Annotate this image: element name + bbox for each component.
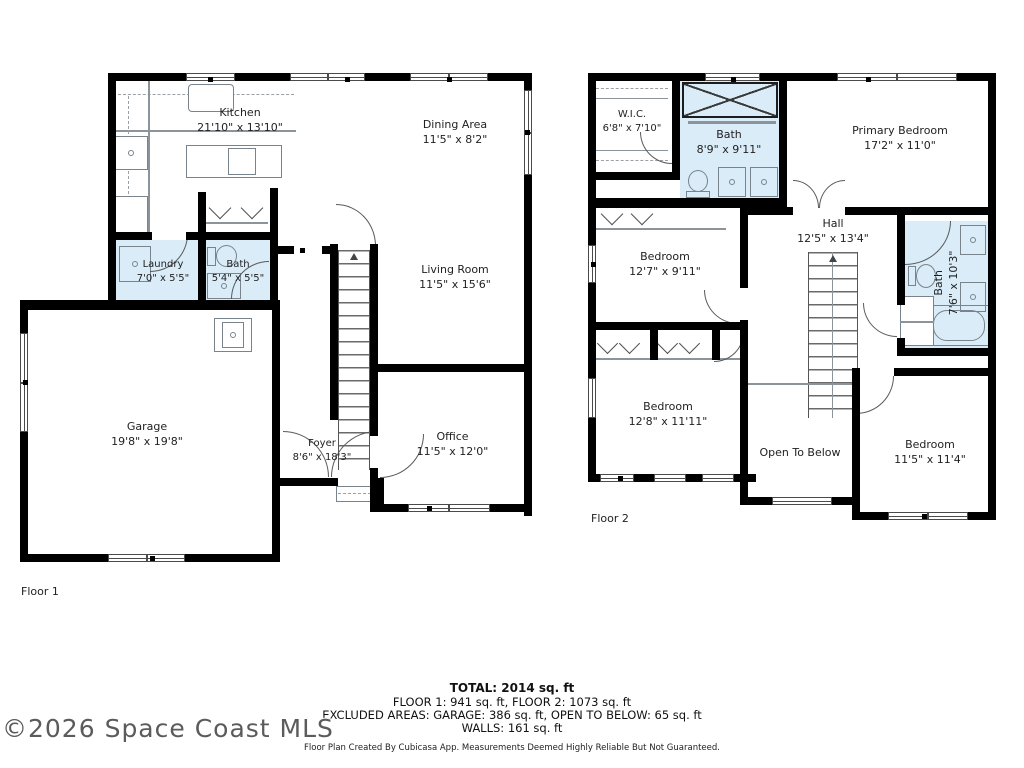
living-entry-door-arc [336,204,376,246]
wall [198,192,206,234]
room-label-hall: Hall 12'5" x 13'4" [763,217,903,247]
wall [322,246,332,254]
dimension-tick [991,262,996,267]
room-label-bedroom-lower-left: Bedroom 12'8" x 11'11" [598,400,738,430]
toilet-bowl-f2 [688,170,708,192]
floor-plan-canvas: Kitchen 21'10" x 13'10" Dining Area 11'5… [0,0,1024,768]
room-name: Dining Area [380,118,530,133]
room-label-bath-f1: Bath 5'4" x 5'5" [205,258,271,285]
wall [740,198,748,288]
wall [779,81,787,215]
closet-hanger-icon [241,197,264,220]
room-name: Primary Bedroom [808,124,992,139]
wall [270,188,278,234]
stair-direction-arrow [829,255,837,262]
room-label-foyer: Foyer 8'6" x 18'3" [274,437,370,464]
wall [108,232,152,240]
room-dims: 19'8" x 19'8" [72,435,222,450]
window [702,474,734,482]
room-name: Living Room [380,263,530,278]
dimension-tick [922,514,927,519]
wall [588,322,748,330]
dimension-tick [208,77,213,82]
summary-disclaimer: Floor Plan Created By Cubicasa App. Meas… [0,744,1024,754]
room-name: Bath [682,128,776,143]
closet-front-line [596,228,726,230]
room-dims: 11'5" x 11'4" [858,453,1002,468]
window [449,73,488,81]
floor1-tag: Floor 1 [21,585,59,598]
room-label-primary-bedroom: Primary Bedroom 17'2" x 11'0" [808,124,992,154]
window [654,474,686,482]
room-name: Hall [763,217,903,232]
room-name: Bedroom [598,400,738,415]
pantry-cabinet [114,196,148,234]
dimension-tick [427,506,432,511]
wall [897,348,996,356]
wall [370,478,384,512]
dimension-tick [731,77,736,82]
room-label-bedroom-lower-right: Bedroom 11'5" x 11'4" [858,438,1002,468]
window [108,554,147,562]
wall [278,246,294,254]
room-label-bath-upper: Bath 8'9" x 9'11" [682,128,776,158]
bedroom-mid-door-arc [704,290,738,324]
window [772,497,832,505]
room-name: Foyer [274,437,370,451]
dimension-tick [591,262,596,267]
window [20,383,28,432]
room-dims: 7'0" x 5'5" [116,272,210,286]
room-label-bedroom-mid: Bedroom 12'7" x 9'11" [598,250,732,280]
staircase-f2 [808,252,858,418]
room-name: Open To Below [730,446,870,461]
room-dims: 12'5" x 13'4" [763,232,903,247]
room-name: Laundry [116,258,210,272]
room-name: Kitchen [160,106,320,121]
wall [270,232,278,308]
toilet-tank-f2 [686,191,710,198]
room-dims: 11'5" x 15'6" [380,278,530,293]
room-dims: 12'8" x 11'11" [598,415,738,430]
wall [330,244,338,420]
cooktop [114,136,148,170]
closet-shelf-line [206,222,268,224]
toilet-tank-f2b [908,266,916,286]
window [410,73,449,81]
room-label-laundry: Laundry 7'0" x 5'5" [116,258,210,285]
wall [272,300,280,562]
wall [588,198,780,208]
wic-shelf-line [596,98,668,99]
dimension-tick [345,77,350,82]
room-name: Bedroom [598,250,732,265]
window [897,73,957,81]
room-name: Office [385,430,520,445]
room-dims: 7'6" x 10'3" [947,238,962,328]
room-label-bath-right: Bath 7'6" x 10'3" [932,238,962,328]
dimension-tick [300,248,305,253]
island-cooktop-inset [228,148,256,175]
wall [672,81,680,180]
room-label-dining: Dining Area 11'5" x 8'2" [380,118,530,148]
room-label-office: Office 11'5" x 12'0" [385,430,520,460]
wall [378,364,532,372]
dimension-tick [150,556,155,561]
wall [280,478,338,486]
wall [650,330,658,360]
wall [588,172,680,180]
room-name: Bath [932,238,947,328]
room-label-garage: Garage 19'8" x 19'8" [72,420,222,450]
mls-watermark: ©2026 Space Coast MLS [2,714,334,743]
bath-vanity-sink [750,167,778,197]
bath-right-door-arc [863,303,897,337]
room-dims: 21'10" x 13'10" [160,121,320,136]
room-name: Bath [205,258,271,272]
open-below-edge [748,383,852,385]
shower-glass-line [688,121,776,124]
bedroom-lower-right-door-arc [856,376,894,414]
dimension-tick [23,380,28,385]
wall [370,244,378,436]
room-dims: 12'7" x 9'11" [598,265,732,280]
summary-total: TOTAL: 2014 sq. ft [0,682,1024,696]
room-name: W.I.C. [592,108,672,122]
summary-floors: FLOOR 1: 941 sq. ft, FLOOR 2: 1073 sq. f… [0,696,1024,709]
wall [845,207,996,215]
wall [748,207,793,215]
kitchen-counter-edge-left [148,81,150,233]
closet-hanger-icon [679,333,700,354]
dimension-tick [618,476,623,481]
closet-hanger-icon [657,333,678,354]
room-label-kitchen: Kitchen 21'10" x 13'10" [160,106,320,136]
bath-vanity-sink [960,225,986,255]
room-dims: 8'9" x 9'11" [682,143,776,158]
room-dims: 5'4" x 5'5" [205,272,271,286]
window [928,512,968,520]
closet-hanger-icon [209,197,232,220]
dimension-tick [447,77,452,82]
window [449,504,490,512]
floor2-tag: Floor 2 [591,512,629,525]
room-dims: 17'2" x 11'0" [808,139,992,154]
window [290,73,328,81]
water-heater [222,322,244,348]
room-dims: 11'5" x 8'2" [380,133,530,148]
window [600,474,634,482]
window [588,378,596,418]
room-label-open-to-below: Open To Below [730,446,870,461]
room-label-wic: W.I.C. 6'8" x 7'10" [592,108,672,135]
bath-vanity-sink [718,167,746,197]
primary-door-left-arc [793,180,819,208]
room-label-living: Living Room 11'5" x 15'6" [380,263,530,293]
wic-shelf-dashline [596,88,668,89]
room-name: Garage [72,420,222,435]
stair-direction-arrow [350,253,358,260]
stair-stringer-line [832,252,833,418]
hall-closet-divider [900,321,934,323]
room-dims: 8'6" x 18'3" [274,451,370,465]
dimension-tick [866,77,871,82]
closet-hanger-icon [619,333,640,354]
room-dims: 11'5" x 12'0" [385,445,520,460]
shower [682,82,778,118]
room-name: Bedroom [858,438,1002,453]
wall [108,73,116,308]
closet-hanger-icon [597,333,618,354]
window [20,333,28,383]
room-dims: 6'8" x 7'10" [592,122,672,136]
primary-door-right-arc [819,180,845,208]
wall [894,368,996,376]
wall [712,330,720,360]
wall [20,300,280,310]
